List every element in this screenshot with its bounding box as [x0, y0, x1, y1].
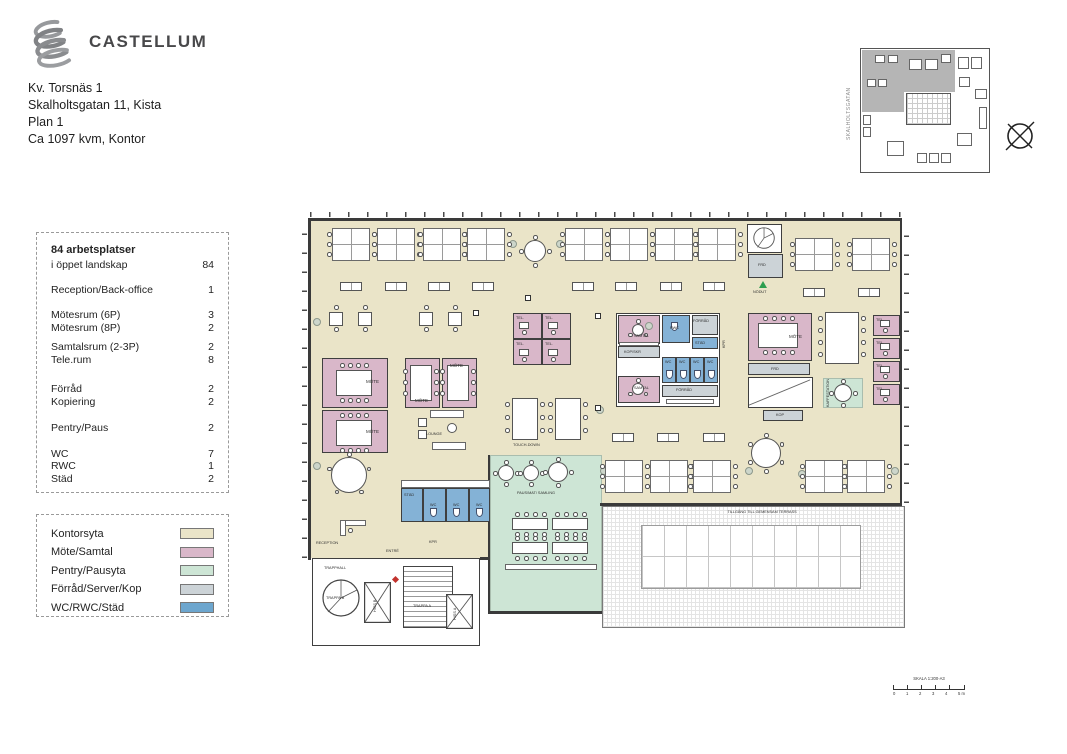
chair-icon — [348, 398, 353, 403]
desk-cluster — [655, 228, 693, 261]
project-table — [825, 312, 859, 364]
tel-desk — [519, 349, 529, 356]
chair-icon — [440, 380, 445, 385]
chair-icon — [515, 536, 520, 541]
terrace-grid — [641, 525, 861, 589]
stat-value: 1 — [208, 460, 214, 473]
lunch-table — [512, 518, 548, 530]
chair-icon — [529, 460, 534, 465]
chair-icon — [524, 536, 529, 541]
chair-icon — [505, 415, 510, 420]
chair-icon — [605, 252, 610, 257]
room-label-wc: WC — [430, 503, 436, 508]
chair-icon — [892, 262, 897, 267]
chair-icon — [471, 369, 476, 374]
chair-icon — [434, 391, 439, 396]
chair-icon — [573, 556, 578, 561]
chair-icon — [842, 484, 847, 489]
chair-icon — [462, 232, 467, 237]
legend-label: Pentry/Pausyta — [51, 565, 126, 577]
reception-counter — [340, 520, 346, 536]
chair-icon — [548, 402, 553, 407]
legend-row: Möte/Samtal — [51, 546, 214, 559]
label-paus-mat-samling: PAUS/MAT/ SAMLING — [516, 491, 556, 496]
chair-icon — [892, 252, 897, 257]
desk-cluster — [377, 228, 415, 261]
stats-row: Mötesrum (6P)3 — [51, 309, 214, 322]
stat-value: 2 — [208, 396, 214, 409]
chair-icon — [842, 464, 847, 469]
plant-icon — [313, 462, 321, 470]
chair-icon — [434, 380, 439, 385]
toilet-icon — [680, 370, 687, 379]
toilet-icon — [476, 508, 483, 517]
chair-icon — [453, 305, 458, 310]
stat-label: Städ — [51, 473, 73, 486]
stat-label: Reception/Back-office — [51, 284, 153, 297]
label-reception: RECEPTION — [316, 541, 338, 546]
stat-label: Pentry/Paus — [51, 422, 108, 435]
chair-icon — [835, 262, 840, 267]
chair-icon — [542, 512, 547, 517]
chair-icon — [883, 351, 888, 356]
minimap-room — [887, 141, 904, 156]
chair-icon — [504, 482, 509, 487]
room-forrad — [692, 315, 718, 335]
room-label-mote: MÖTE — [366, 429, 379, 434]
facade-windows-left — [302, 218, 307, 558]
stat-label: RWC — [51, 460, 76, 473]
room-server — [748, 377, 813, 408]
legend-label: WC/RWC/Städ — [51, 602, 124, 614]
round-table — [751, 438, 781, 468]
chair-icon — [790, 262, 795, 267]
label-touch-down: TOUCH-DOWN — [513, 443, 540, 448]
stat-value: 7 — [208, 448, 214, 461]
round-table — [331, 457, 367, 493]
room-label-tel: TEL. — [876, 364, 884, 369]
chair-icon — [403, 369, 408, 374]
room-label-wc: WC — [693, 360, 699, 365]
toilet-icon — [666, 370, 673, 379]
lockers — [619, 342, 659, 346]
label-hiss-b: HISS B — [373, 600, 378, 612]
chair-icon — [636, 319, 641, 324]
chair-icon — [364, 363, 369, 368]
page: { "header": { "brand": "CASTELLUM", "add… — [0, 0, 1067, 754]
side-table — [572, 282, 594, 291]
chair-icon — [533, 536, 538, 541]
chair-icon — [542, 556, 547, 561]
column-marker — [595, 313, 601, 319]
room-label-wc: WC — [453, 503, 459, 508]
stat-value: 2 — [208, 383, 214, 396]
room-label-kpr: KPR — [429, 540, 437, 545]
chair-icon — [887, 484, 892, 489]
plant-icon — [891, 467, 899, 475]
chair-icon — [327, 232, 332, 237]
scale-tick: 2 — [919, 691, 921, 696]
chair-icon — [790, 242, 795, 247]
chair-icon — [841, 403, 846, 408]
side-table — [418, 418, 427, 427]
room-label-tel: TEL. — [876, 341, 884, 346]
minimap-room — [888, 55, 898, 63]
site-overview-map — [855, 28, 991, 180]
chair-icon — [892, 242, 897, 247]
chair-icon — [340, 363, 345, 368]
side-table — [703, 282, 725, 291]
chair-icon — [542, 536, 547, 541]
room-label-rwc: RWC — [670, 326, 679, 331]
minimap-highlight-area — [862, 92, 904, 112]
desk-cluster — [693, 460, 731, 493]
chair-icon — [650, 252, 655, 257]
chair-icon — [573, 536, 578, 541]
minimap-room — [971, 57, 982, 69]
chair-icon — [733, 464, 738, 469]
chair-icon — [883, 328, 888, 333]
minimap-building — [860, 48, 990, 173]
wall-top — [310, 218, 902, 221]
scale-tick: 5 m — [958, 691, 965, 696]
plant-icon — [645, 322, 653, 330]
sofa — [432, 442, 466, 450]
chair-icon — [551, 330, 556, 335]
chair-icon — [818, 340, 823, 345]
chair-icon — [564, 512, 569, 517]
minimap-room — [863, 127, 871, 137]
wall-pausyta-left — [488, 455, 490, 613]
column-marker — [473, 310, 479, 316]
desk-cluster — [852, 238, 890, 271]
facade-windows-top — [310, 212, 902, 217]
desk-cluster — [332, 228, 370, 261]
room-label-frd: FRD — [758, 263, 766, 268]
standing-table — [419, 312, 433, 326]
chair-icon — [548, 415, 553, 420]
pouf — [447, 423, 457, 433]
address-line: Skalholtsgatan 11, Kista — [28, 97, 161, 114]
chair-icon — [780, 460, 785, 465]
toilet-icon — [453, 508, 460, 517]
castellum-logo-icon — [25, 16, 77, 68]
stat-label: Kopiering — [51, 396, 95, 409]
address-line: Kv. Torsnäs 1 — [28, 80, 161, 97]
chair-icon — [605, 232, 610, 237]
chair-icon — [340, 413, 345, 418]
chair-icon — [372, 252, 377, 257]
desk-cluster — [698, 228, 736, 261]
chair-icon — [334, 327, 339, 332]
chair-icon — [800, 464, 805, 469]
chair-icon — [763, 350, 768, 355]
chair-icon — [327, 467, 332, 472]
terrace — [602, 506, 905, 628]
chair-icon — [693, 252, 698, 257]
chair-icon — [334, 305, 339, 310]
stats-row: Mötesrum (8P)2 — [51, 322, 214, 335]
stat-value: 3 — [208, 309, 214, 322]
room-label-stad: STÄD — [404, 493, 414, 498]
scale-tick-labels: 0 1 2 3 4 5 m — [893, 691, 965, 696]
shelf — [401, 480, 490, 488]
minimap-room — [941, 153, 951, 163]
street-label: SKALHOLTSGATAN — [846, 87, 852, 140]
chair-icon — [583, 402, 588, 407]
chair-icon — [573, 512, 578, 517]
chair-icon — [738, 252, 743, 257]
scale-title: SKALA 1:200-A3 — [893, 676, 965, 681]
ramp-line — [749, 378, 812, 407]
scale-bar: SKALA 1:200-A3 0 1 2 3 4 5 m — [893, 676, 965, 696]
chair-icon — [453, 327, 458, 332]
legend-label: Förråd/Server/Kop — [51, 583, 141, 595]
chair-icon — [764, 433, 769, 438]
stat-label: Samtalsrum (2-3P) — [51, 341, 139, 354]
legend-panel: Kontorsyta Möte/Samtal Pentry/Pausyta Fö… — [36, 514, 229, 617]
touch-down-table — [512, 398, 538, 440]
stats-row: Kopiering2 — [51, 396, 214, 409]
chair-icon — [883, 397, 888, 402]
stats-row: Pentry/Paus2 — [51, 422, 214, 435]
desk-cluster — [423, 228, 461, 261]
bench — [505, 564, 597, 570]
chair-icon — [800, 474, 805, 479]
chair-icon — [688, 464, 693, 469]
chair-icon — [505, 428, 510, 433]
room-label-samtal: SAMTAL — [634, 334, 649, 339]
chair-icon — [582, 512, 587, 517]
side-table — [657, 433, 679, 442]
chair-icon — [790, 350, 795, 355]
chair-icon — [540, 428, 545, 433]
chair-icon — [372, 232, 377, 237]
legend-swatch-pentry — [180, 565, 214, 576]
chair-icon — [564, 556, 569, 561]
chair-icon — [519, 249, 524, 254]
side-table — [428, 282, 450, 291]
stats-title: 84 arbetsplatser — [51, 244, 214, 256]
room-label-kop-skr: KOP/SKR — [624, 350, 641, 355]
chair-icon — [403, 380, 408, 385]
chair-icon — [327, 252, 332, 257]
chair-icon — [363, 305, 368, 310]
chair-icon — [348, 413, 353, 418]
stat-label: Tele.rum — [51, 354, 91, 367]
lunch-table — [552, 518, 588, 530]
legend-row: WC/RWC/Städ — [51, 601, 214, 614]
room-label-forrad: FÖRRÅD — [676, 388, 692, 393]
chair-icon — [790, 252, 795, 257]
chair-icon — [543, 470, 548, 475]
north-compass-icon — [1003, 119, 1037, 153]
room-label-mote: MÖTE — [415, 398, 428, 403]
chair-icon — [583, 415, 588, 420]
chair-icon — [582, 556, 587, 561]
label-kaffestation: KAFFESTATION — [826, 379, 831, 407]
floor-plan: TILLGÅNG TILL GEMENSAM TERRASS — [300, 210, 912, 654]
side-table — [340, 282, 362, 291]
chair-icon — [790, 316, 795, 321]
chair-icon — [738, 232, 743, 237]
chair-icon — [340, 398, 345, 403]
chair-icon — [569, 470, 574, 475]
minimap-room — [863, 115, 871, 125]
chair-icon — [522, 357, 527, 362]
room-label-kpr: KPR — [722, 340, 727, 348]
chair-icon — [348, 363, 353, 368]
chair-icon — [418, 252, 423, 257]
chair-icon — [507, 252, 512, 257]
chair-icon — [842, 474, 847, 479]
scale-ruler — [893, 684, 965, 690]
chair-icon — [356, 448, 361, 453]
label-entre: ENTRÉ — [386, 549, 399, 554]
stat-value: 84 — [202, 259, 214, 272]
label-trappa-a: TRAPPA A — [413, 604, 431, 609]
minimap-room — [917, 153, 927, 163]
label-lounge: LOUNGE — [426, 432, 442, 437]
chair-icon — [364, 413, 369, 418]
chair-icon — [424, 327, 429, 332]
side-table — [660, 282, 682, 291]
minimap-room — [875, 55, 885, 63]
side-table — [612, 433, 634, 442]
chair-icon — [372, 242, 377, 247]
room-label-tel: TEL. — [876, 387, 884, 392]
cafe-table — [523, 465, 539, 481]
chair-icon — [540, 415, 545, 420]
chair-icon — [764, 469, 769, 474]
stat-label: Mötesrum (8P) — [51, 322, 120, 335]
chair-icon — [522, 330, 527, 335]
minimap-room — [957, 133, 972, 146]
chair-icon — [688, 484, 693, 489]
conference-table — [410, 365, 432, 401]
stats-row: Reception/Back-office1 — [51, 284, 214, 297]
cafe-table — [548, 462, 568, 482]
legend-swatch-forrad — [180, 584, 214, 595]
stat-value: 2 — [208, 322, 214, 335]
chair-icon — [605, 242, 610, 247]
chair-icon — [847, 252, 852, 257]
chair-icon — [529, 482, 534, 487]
lockers — [666, 399, 714, 404]
room-label-mote: MÖTE — [450, 363, 463, 368]
desk-cluster — [847, 460, 885, 493]
nodut-arrow-icon — [759, 281, 767, 288]
desk-cluster — [610, 228, 648, 261]
side-table — [385, 282, 407, 291]
plant-icon — [745, 467, 753, 475]
room-label-stad: STÄD — [695, 341, 705, 346]
chair-icon — [524, 512, 529, 517]
chair-icon — [763, 316, 768, 321]
room-label-mote: MÖTE — [366, 379, 379, 384]
stats-row: Städ2 — [51, 473, 214, 486]
chair-icon — [887, 464, 892, 469]
stats-row: Samtalsrum (2-3P)2 — [51, 341, 214, 354]
toilet-icon — [694, 370, 701, 379]
stat-label: i öppet landskap — [51, 259, 127, 272]
brand-row: CASTELLUM — [25, 16, 207, 68]
stat-label: WC — [51, 448, 69, 461]
label-trapphall: TRAPPHALL — [324, 566, 346, 571]
chair-icon — [560, 232, 565, 237]
chair-icon — [547, 249, 552, 254]
chair-icon — [693, 232, 698, 237]
chair-icon — [356, 398, 361, 403]
toilet-icon — [430, 508, 437, 517]
wall-left — [308, 218, 311, 560]
minimap-room — [959, 77, 970, 87]
chair-icon — [555, 512, 560, 517]
chair-icon — [418, 242, 423, 247]
chair-icon — [356, 363, 361, 368]
minimap-room — [958, 57, 969, 69]
stats-row: WC7 — [51, 448, 214, 461]
chair-icon — [540, 402, 545, 407]
chair-icon — [356, 413, 361, 418]
elevator-icon — [446, 594, 473, 629]
chair-icon — [340, 448, 345, 453]
stats-panel: 84 arbetsplatser i öppet landskap84 Rece… — [36, 232, 229, 493]
toilet-icon — [708, 370, 715, 379]
chair-icon — [645, 484, 650, 489]
side-table — [858, 288, 880, 297]
chair-icon — [515, 556, 520, 561]
minimap-courtyard — [906, 93, 951, 125]
legend-row: Förråd/Server/Kop — [51, 583, 214, 596]
minimap-room — [878, 79, 887, 87]
stat-value: 2 — [208, 473, 214, 486]
chair-icon — [835, 242, 840, 247]
tel-desk — [548, 322, 558, 329]
chair-icon — [533, 235, 538, 240]
legend-row: Kontorsyta — [51, 527, 214, 540]
chair-icon — [818, 352, 823, 357]
chair-icon — [434, 369, 439, 374]
stat-value: 1 — [208, 284, 214, 297]
chair-icon — [688, 474, 693, 479]
room-label-tel: TEL. — [545, 316, 553, 321]
chair-icon — [363, 327, 368, 332]
facade-windows-right — [904, 218, 909, 503]
standing-table — [329, 312, 343, 326]
chair-icon — [524, 556, 529, 561]
chair-icon — [505, 402, 510, 407]
scale-tick: 4 — [945, 691, 947, 696]
chair-icon — [560, 252, 565, 257]
chair-icon — [818, 316, 823, 321]
round-table — [834, 384, 852, 402]
chair-icon — [556, 483, 561, 488]
legend-swatch-mote — [180, 547, 214, 558]
legend-row: Pentry/Pausyta — [51, 564, 214, 577]
room-label-kop: KOP — [776, 413, 784, 418]
chair-icon — [628, 333, 633, 338]
chair-icon — [861, 340, 866, 345]
label-trappa-b: TRAPPA B — [326, 596, 344, 601]
side-table — [703, 433, 725, 442]
scale-tick: 3 — [932, 691, 934, 696]
chair-icon — [847, 262, 852, 267]
chair-icon — [462, 252, 467, 257]
tel-desk — [519, 322, 529, 329]
minimap-room — [925, 59, 938, 70]
chair-icon — [555, 536, 560, 541]
